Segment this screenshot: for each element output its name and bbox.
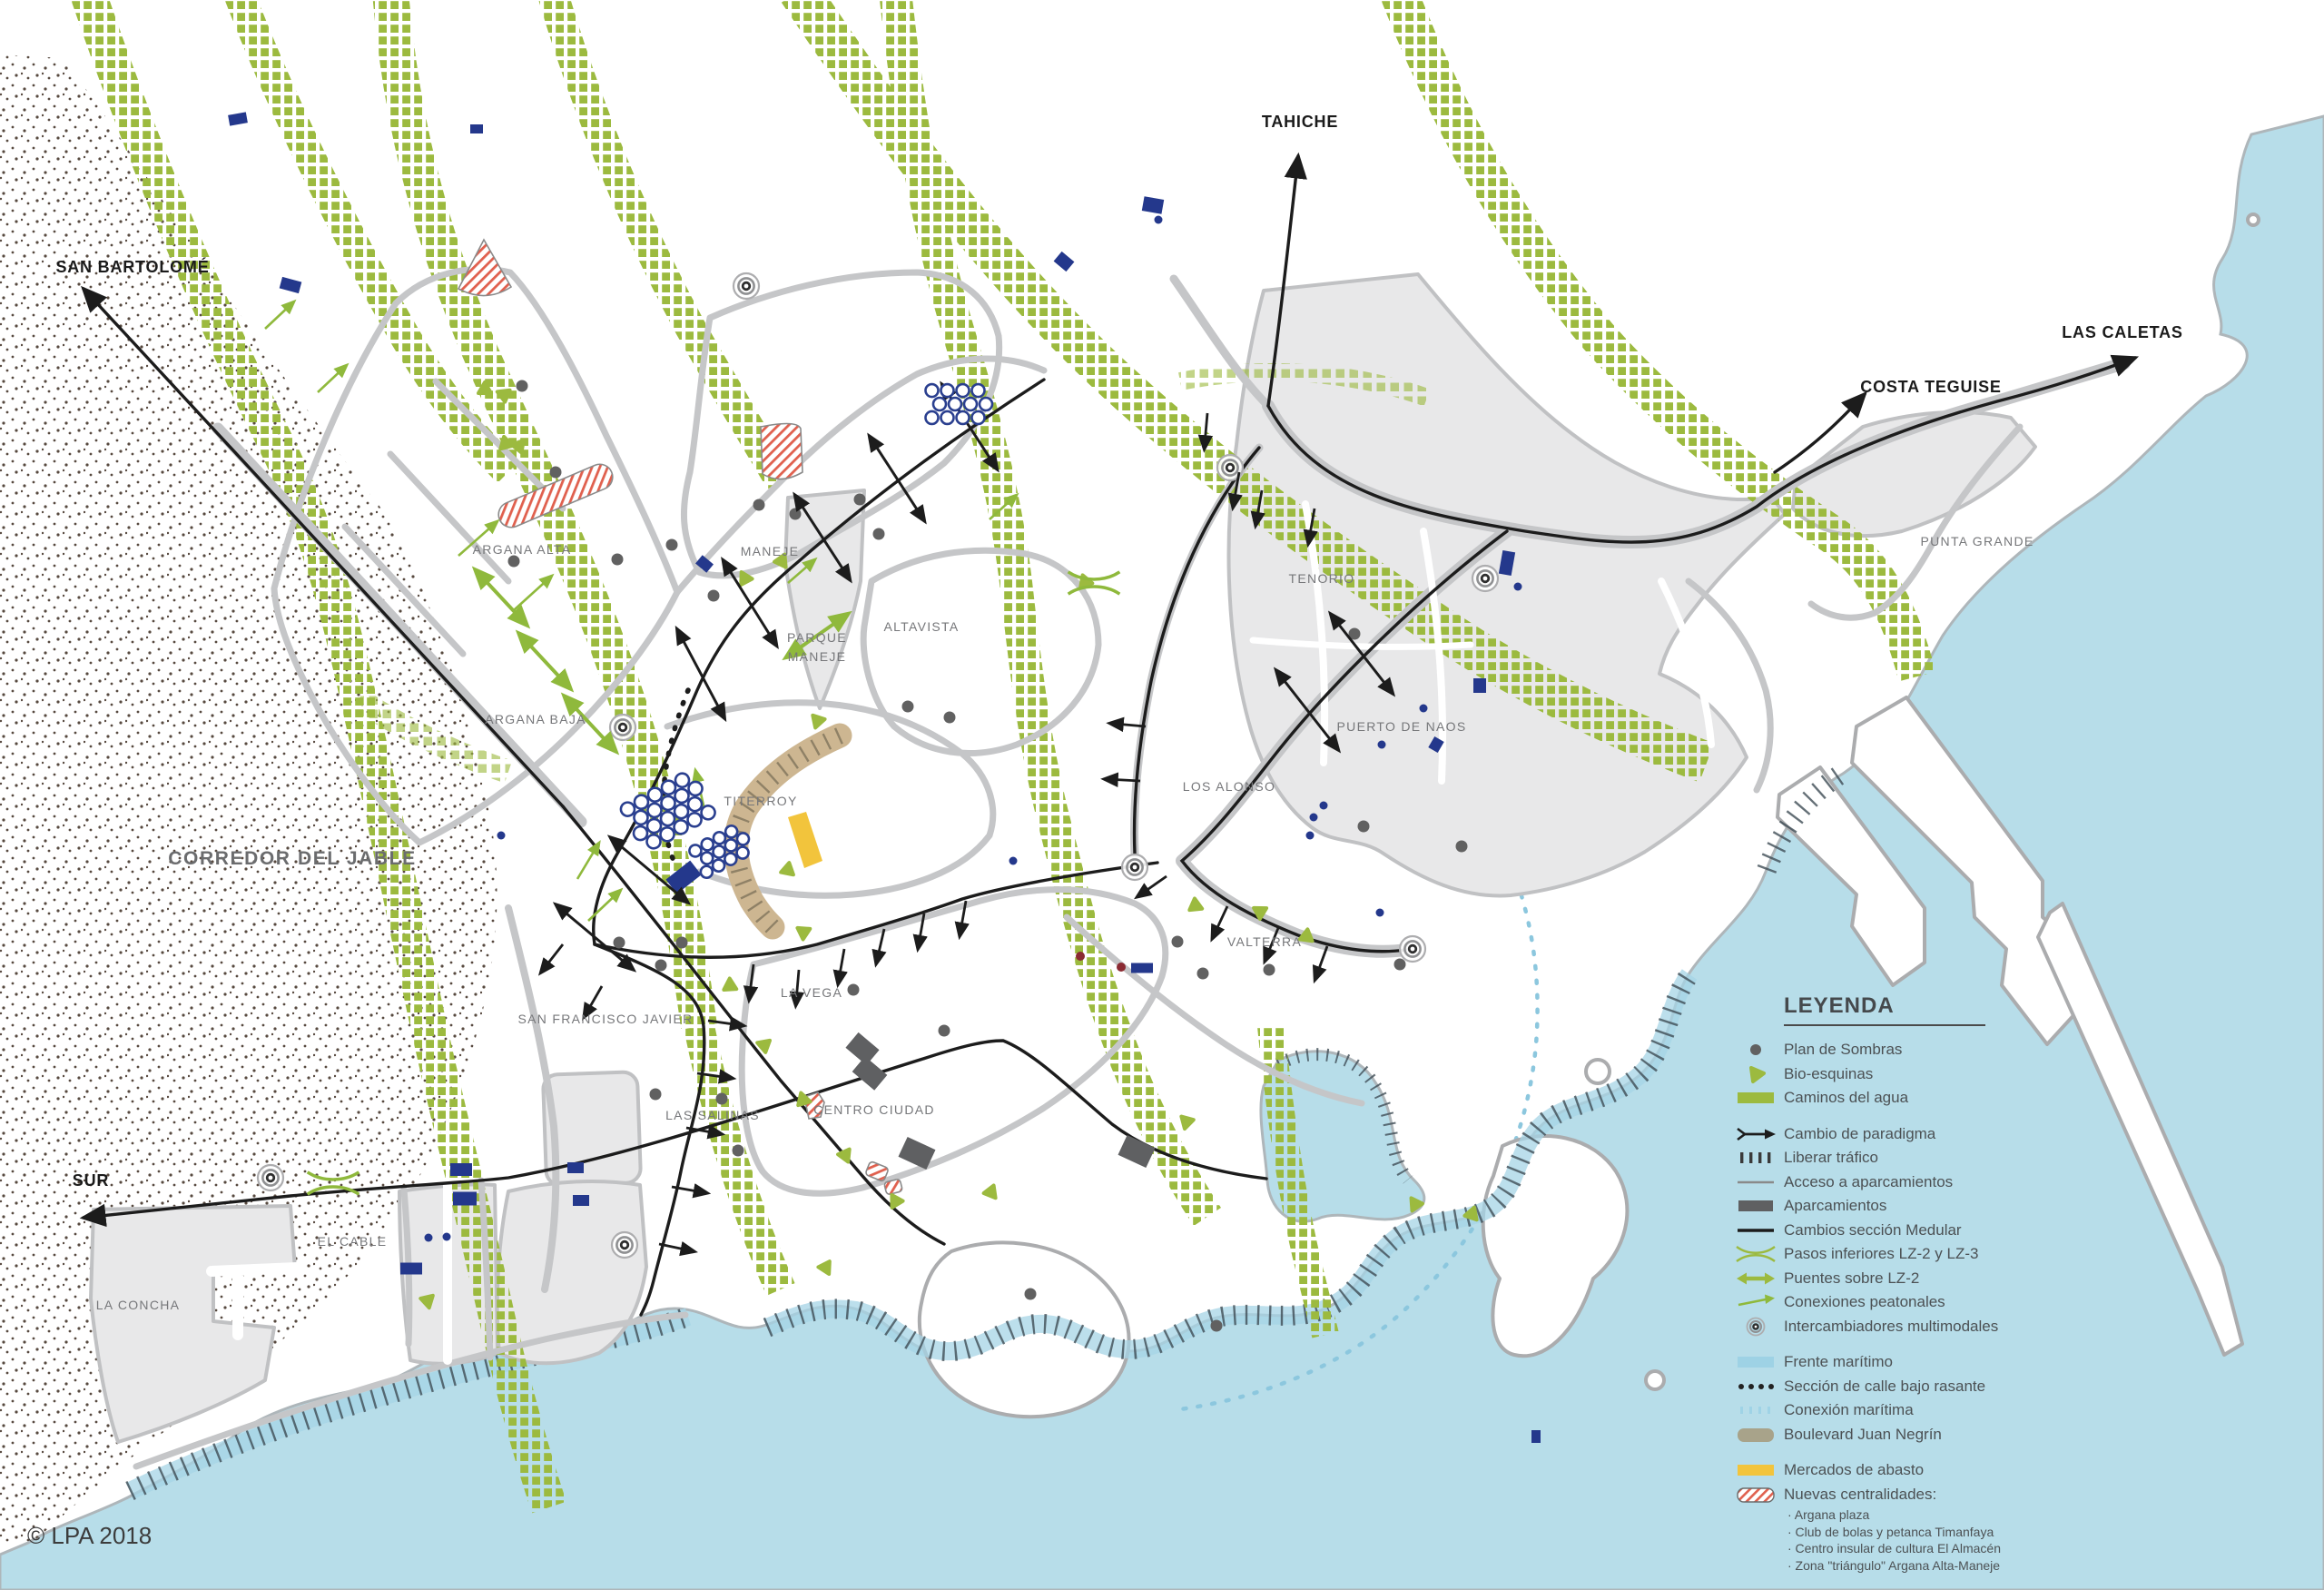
navy-block [1142, 196, 1164, 214]
navy-dot [1376, 909, 1384, 917]
plan-de-sombras-dot [708, 590, 720, 602]
bolas-petanca-cluster [926, 384, 993, 424]
plan-de-sombras-dot [676, 937, 688, 949]
mercado-abasto [788, 812, 822, 868]
plan-de-sombras-dot [1456, 841, 1468, 853]
bio-esquina-icon [1728, 1064, 1784, 1084]
district-label-san-francisco-javier: SAN FRANCISCO JAVIER [518, 1012, 694, 1026]
plan-de-sombras-dot [1025, 1289, 1037, 1300]
legend-label: Mercados de abasto [1784, 1461, 1924, 1479]
paradigm-arrow [1212, 906, 1227, 939]
district-label-altavista: ALTAVISTA [883, 619, 959, 634]
navy-block [400, 1263, 422, 1275]
plan-de-sombras-dot [614, 937, 625, 949]
district-label-maneje: MANEJE [741, 544, 800, 558]
district-label-valterra: VALTERRA [1227, 934, 1302, 949]
dest-label-sur: SUR [73, 1171, 109, 1190]
intercambiador-icon [1472, 566, 1498, 591]
navy-dot [497, 832, 506, 840]
paradigm-arrow [1315, 946, 1327, 981]
dest-label-costa-teguise: COSTA TEGUISE [1860, 378, 2001, 396]
plan-de-sombras-dot [612, 554, 624, 566]
plan-de-sombras-dot [854, 494, 866, 506]
puente-icon [1728, 1269, 1784, 1289]
plan-de-sombras-dot [716, 1093, 728, 1105]
legend-bullet-list: · Argana plaza· Club de bolas y petanca … [1787, 1506, 2172, 1574]
aparcamientos-icon [1728, 1196, 1784, 1216]
plan-de-sombras-dot [939, 1025, 950, 1037]
legend-bullet: · Zona "triángulo" Argana Alta-Maneje [1787, 1557, 2172, 1575]
legend-label: Caminos del agua [1784, 1089, 1908, 1107]
conexion-peatonal-arrow [577, 843, 599, 879]
plan-de-sombras-dot [550, 467, 562, 479]
plan-de-sombras-dot [1197, 968, 1209, 980]
plan-de-sombras-dot [848, 984, 860, 996]
pasos-inferiores-icon [1728, 1244, 1784, 1264]
legend-item-puentes-sobre-lz-2: Puentes sobre LZ-2 [1728, 1267, 2172, 1291]
legend-label: Nuevas centralidades: [1784, 1486, 1936, 1504]
intercambiador-icon [1400, 936, 1425, 962]
legend-item-cambio-de-paradigma: Cambio de paradigma [1728, 1122, 2172, 1147]
navy-block [573, 1195, 589, 1206]
plan-de-sombras-dot [1394, 959, 1406, 971]
legend-item-conexio-n-mari-tima: Conexión marítima [1728, 1398, 2172, 1423]
legend-label: Intercambiadores multimodales [1784, 1318, 1998, 1336]
plan-de-sombras-dot [902, 701, 914, 713]
maroon-dot [1117, 963, 1126, 972]
legend-bullet: · Club de bolas y petanca Timanfaya [1787, 1524, 2172, 1541]
maroon-dot [1076, 952, 1085, 961]
legend-label: Bio-esquinas [1784, 1065, 1873, 1083]
legend-label: Conexión marítima [1784, 1401, 1914, 1419]
mercados-icon [1728, 1460, 1784, 1480]
district-label-el-cable: EL CABLE [318, 1234, 388, 1249]
legend-bullet: · Centro insular de cultura El Almacén [1787, 1540, 2172, 1557]
district-label-centro-ciudad: CENTRO CIUDAD [813, 1102, 935, 1117]
navy-dot [1420, 705, 1428, 713]
district-label-argana-baja: ARGANA BAJA [485, 712, 586, 726]
legend-group: Mercados de abastoNuevas centralidades:·… [1728, 1458, 2172, 1574]
plan-de-sombras-dot [1172, 936, 1184, 948]
bio-esquina-marker [984, 1183, 1000, 1198]
legend-label: Sección de calle bajo rasante [1784, 1378, 1985, 1396]
bio-esquina-marker [724, 978, 739, 994]
legend-item-bio-esquinas: Bio-esquinas [1728, 1062, 2172, 1087]
paradigm-arrow [540, 944, 563, 973]
navy-block [470, 124, 483, 133]
plan-de-sombras-dot [666, 539, 678, 551]
legend-item-frente-mari-timo: Frente marítimo [1728, 1350, 2172, 1375]
legend-label: Conexiones peatonales [1784, 1293, 1945, 1311]
plan-de-sombras-dot [650, 1089, 662, 1101]
paradigm-arrow [838, 949, 844, 984]
bio-esquina-marker [1186, 898, 1202, 914]
intercambiador-icon [1728, 1317, 1784, 1337]
legend-item-seccio-n-de-calle-bajo-rasante: Sección de calle bajo rasante [1728, 1375, 2172, 1399]
navy-block [1531, 1430, 1541, 1443]
navy-dot [1009, 857, 1018, 865]
plan-de-sombras-dot [873, 528, 885, 540]
plan-de-sombras-dot [753, 499, 765, 511]
legend-item-plan-de-sombras: Plan de Sombras [1728, 1038, 2172, 1062]
navy-dot [1155, 216, 1163, 224]
legend-item-cambios-seccio-n-medular: Cambios sección Medular [1728, 1219, 2172, 1243]
district-label-las-salinas: LAS SALINAS [665, 1108, 760, 1122]
district-label-puerto-de-naos: PUERTO DE NAOS [1337, 719, 1467, 734]
district-label-punta-grande: PUNTA GRANDE [1920, 534, 2033, 548]
legend-label: Frente marítimo [1784, 1353, 1893, 1371]
intercambiador-icon [1122, 854, 1147, 880]
arrecife-planning-map: { "copyright": "© LPA 2018", "colors": {… [0, 0, 2324, 1590]
plan-de-sombras-dot [655, 960, 667, 972]
paradigm-arrow [876, 929, 884, 964]
aparcamiento-block [852, 1056, 888, 1090]
plan-de-sombras-dot [1358, 821, 1370, 833]
intercambiador-icon [258, 1165, 283, 1190]
navy-dot [443, 1233, 451, 1241]
navy-block [1473, 678, 1486, 693]
legend-label: Plan de Sombras [1784, 1041, 1902, 1059]
district-label-la-concha: LA CONCHA [96, 1298, 181, 1312]
plan-de-sombras-dot [1211, 1320, 1223, 1332]
navy-block [453, 1192, 477, 1206]
frente-icon [1728, 1352, 1784, 1372]
legend-item-caminos-del-agua: Caminos del agua [1728, 1086, 2172, 1111]
navy-block [450, 1163, 472, 1176]
paradigm-arrow-icon [1728, 1124, 1784, 1144]
legend-item-liberar-tra-fico: Liberar tráfico [1728, 1146, 2172, 1170]
legend-label: Aparcamientos [1784, 1197, 1886, 1215]
district-label-tenorio: TENORIO [1289, 571, 1355, 586]
district-label-titerroy: TITERROY [724, 794, 797, 808]
navy-block [280, 277, 302, 293]
navy-block [228, 112, 248, 125]
dest-label-las-caletas: LAS CALETAS [2062, 323, 2182, 341]
legend-item-mercados-de-abasto: Mercados de abasto [1728, 1458, 2172, 1483]
navy-dot [1310, 814, 1318, 822]
navy-dot [1306, 832, 1315, 840]
plan-de-sombras-dot [944, 712, 956, 724]
bio-esquina-marker [1181, 1113, 1195, 1129]
navy-dot [1378, 741, 1386, 749]
legend-label: Puentes sobre LZ-2 [1784, 1269, 1919, 1288]
legend-item-nuevas-centralidades: Nuevas centralidades: [1728, 1483, 2172, 1507]
plan-de-sombras-dot [508, 556, 520, 568]
legend-label: Cambios sección Medular [1784, 1221, 1962, 1239]
conexion-maritima-icon [1728, 1400, 1784, 1420]
bajo-rasante-icon [1728, 1377, 1784, 1397]
dest-label-tahiche: TAHICHE [1262, 113, 1338, 131]
district-label-argana-alta: ARGANA ALTA [473, 542, 572, 557]
medular-icon [1728, 1220, 1784, 1240]
conexion-peatonal-arrow [265, 301, 294, 329]
dest-label-san-bartolome: SAN BARTOLOMÉ [55, 257, 209, 276]
navy-dot [1514, 583, 1522, 591]
navy-block [567, 1162, 584, 1173]
boulevard-icon [1728, 1425, 1784, 1445]
intercambiador-icon [612, 1232, 637, 1258]
region-label-corredor-del-jable: CORREDOR DEL JABLE [168, 848, 416, 869]
bio-esquina-marker [818, 1258, 834, 1274]
acceso-icon [1728, 1172, 1784, 1192]
plan-de-sombras-dot [733, 1145, 744, 1157]
bio-esquina-marker [797, 923, 812, 940]
conexion-peatonal-arrow [514, 576, 552, 610]
legend-item-aparcamientos: Aparcamientos [1728, 1194, 2172, 1219]
legend-label: Boulevard Juan Negrín [1784, 1426, 1942, 1444]
legend-group: Plan de SombrasBio-esquinasCaminos del a… [1728, 1038, 2172, 1111]
intercambiador-icon [734, 273, 759, 299]
conexion-peatonal-icon [1728, 1292, 1784, 1312]
legend-group: Cambio de paradigmaLiberar tráficoAcceso… [1728, 1122, 2172, 1339]
puente-lz2-arrow [518, 633, 570, 688]
bio-esquina-marker [808, 711, 824, 727]
legend-item-boulevard-juan-negri-n: Boulevard Juan Negrín [1728, 1423, 2172, 1447]
paradigm-arrow [659, 1244, 694, 1251]
legend-group: Frente marítimoSección de calle bajo ras… [1728, 1350, 2172, 1447]
plan-de-sombras-dot [790, 509, 802, 520]
dot-gray-icon [1728, 1040, 1784, 1060]
liberar-icon [1728, 1148, 1784, 1168]
legend-item-acceso-a-aparcamientos: Acceso a aparcamientos [1728, 1170, 2172, 1195]
paradigm-arrow [1137, 876, 1167, 897]
conexion-peatonal-arrow [318, 365, 347, 392]
navy-dot [1320, 802, 1328, 810]
legend-item-intercambiadores-multimodales: Intercambiadores multimodales [1728, 1315, 2172, 1339]
legend-item-pasos-inferiores-lz-2-y-lz-3: Pasos inferiores LZ-2 y LZ-3 [1728, 1242, 2172, 1267]
district-label-la-vega: LA VEGA [781, 985, 842, 1000]
water-bar-icon [1728, 1088, 1784, 1108]
legend-label: Acceso a aparcamientos [1784, 1173, 1953, 1191]
legend-bullet: · Argana plaza [1787, 1506, 2172, 1524]
bio-esquina-marker [781, 862, 795, 874]
plan-de-sombras-dot [517, 380, 528, 392]
district-label-los-alonso: LOS ALONSO [1183, 779, 1275, 794]
legend-panel: LEYENDA Plan de SombrasBio-esquinasCamin… [1728, 993, 2172, 1574]
legend-label: Liberar tráfico [1784, 1149, 1878, 1167]
centralidades-icon [1728, 1485, 1784, 1505]
intercambiador-icon [610, 715, 635, 740]
legend-label: Cambio de paradigma [1784, 1125, 1935, 1143]
legend-title: LEYENDA [1784, 993, 1985, 1026]
conexion-peatonal-arrow [588, 890, 621, 921]
navy-block [1054, 252, 1075, 272]
navy-dot [425, 1234, 433, 1242]
copyright: © LPA 2018 [27, 1522, 152, 1550]
legend-label: Pasos inferiores LZ-2 y LZ-3 [1784, 1245, 1978, 1263]
navy-block [1131, 963, 1153, 973]
plan-de-sombras-dot [1264, 964, 1275, 976]
legend-item-conexiones-peatonales: Conexiones peatonales [1728, 1290, 2172, 1315]
